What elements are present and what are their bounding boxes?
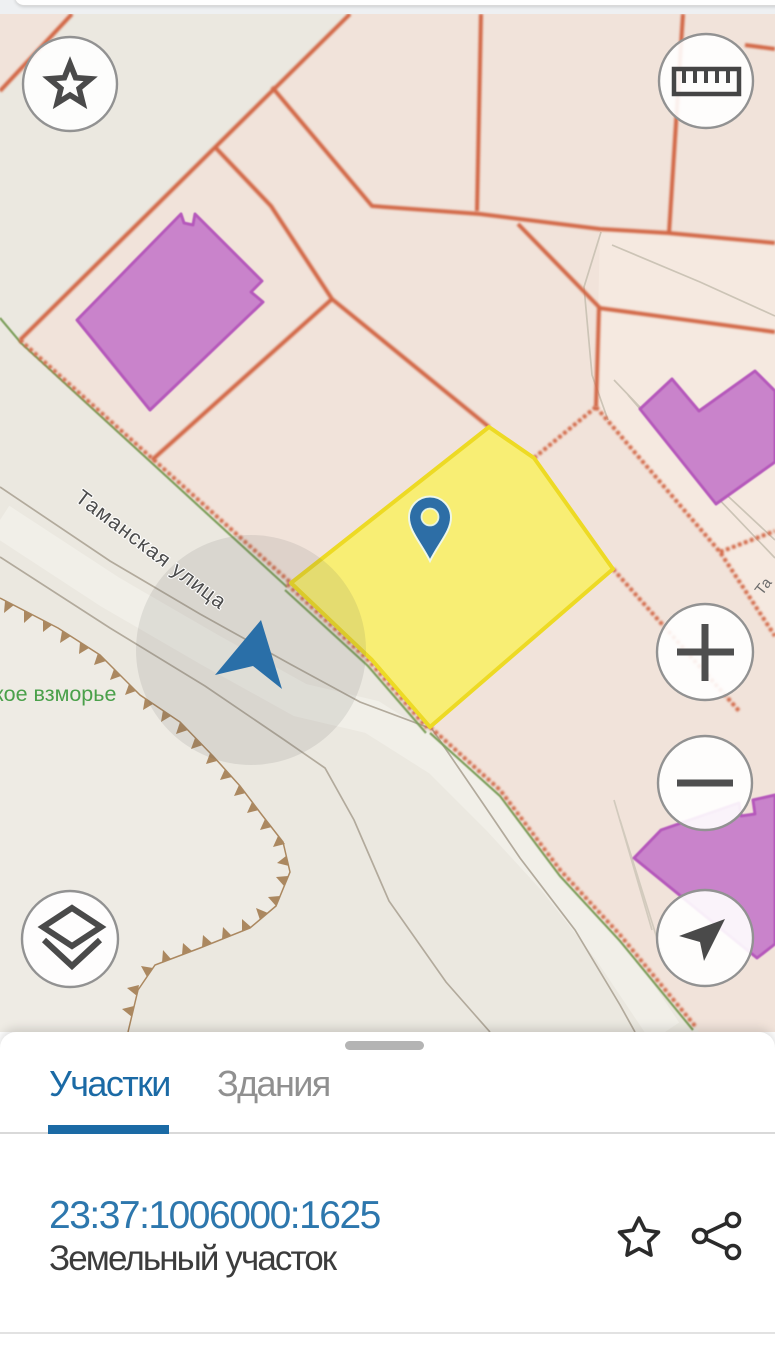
svg-text:кое взморье: кое взморье [0, 682, 116, 706]
